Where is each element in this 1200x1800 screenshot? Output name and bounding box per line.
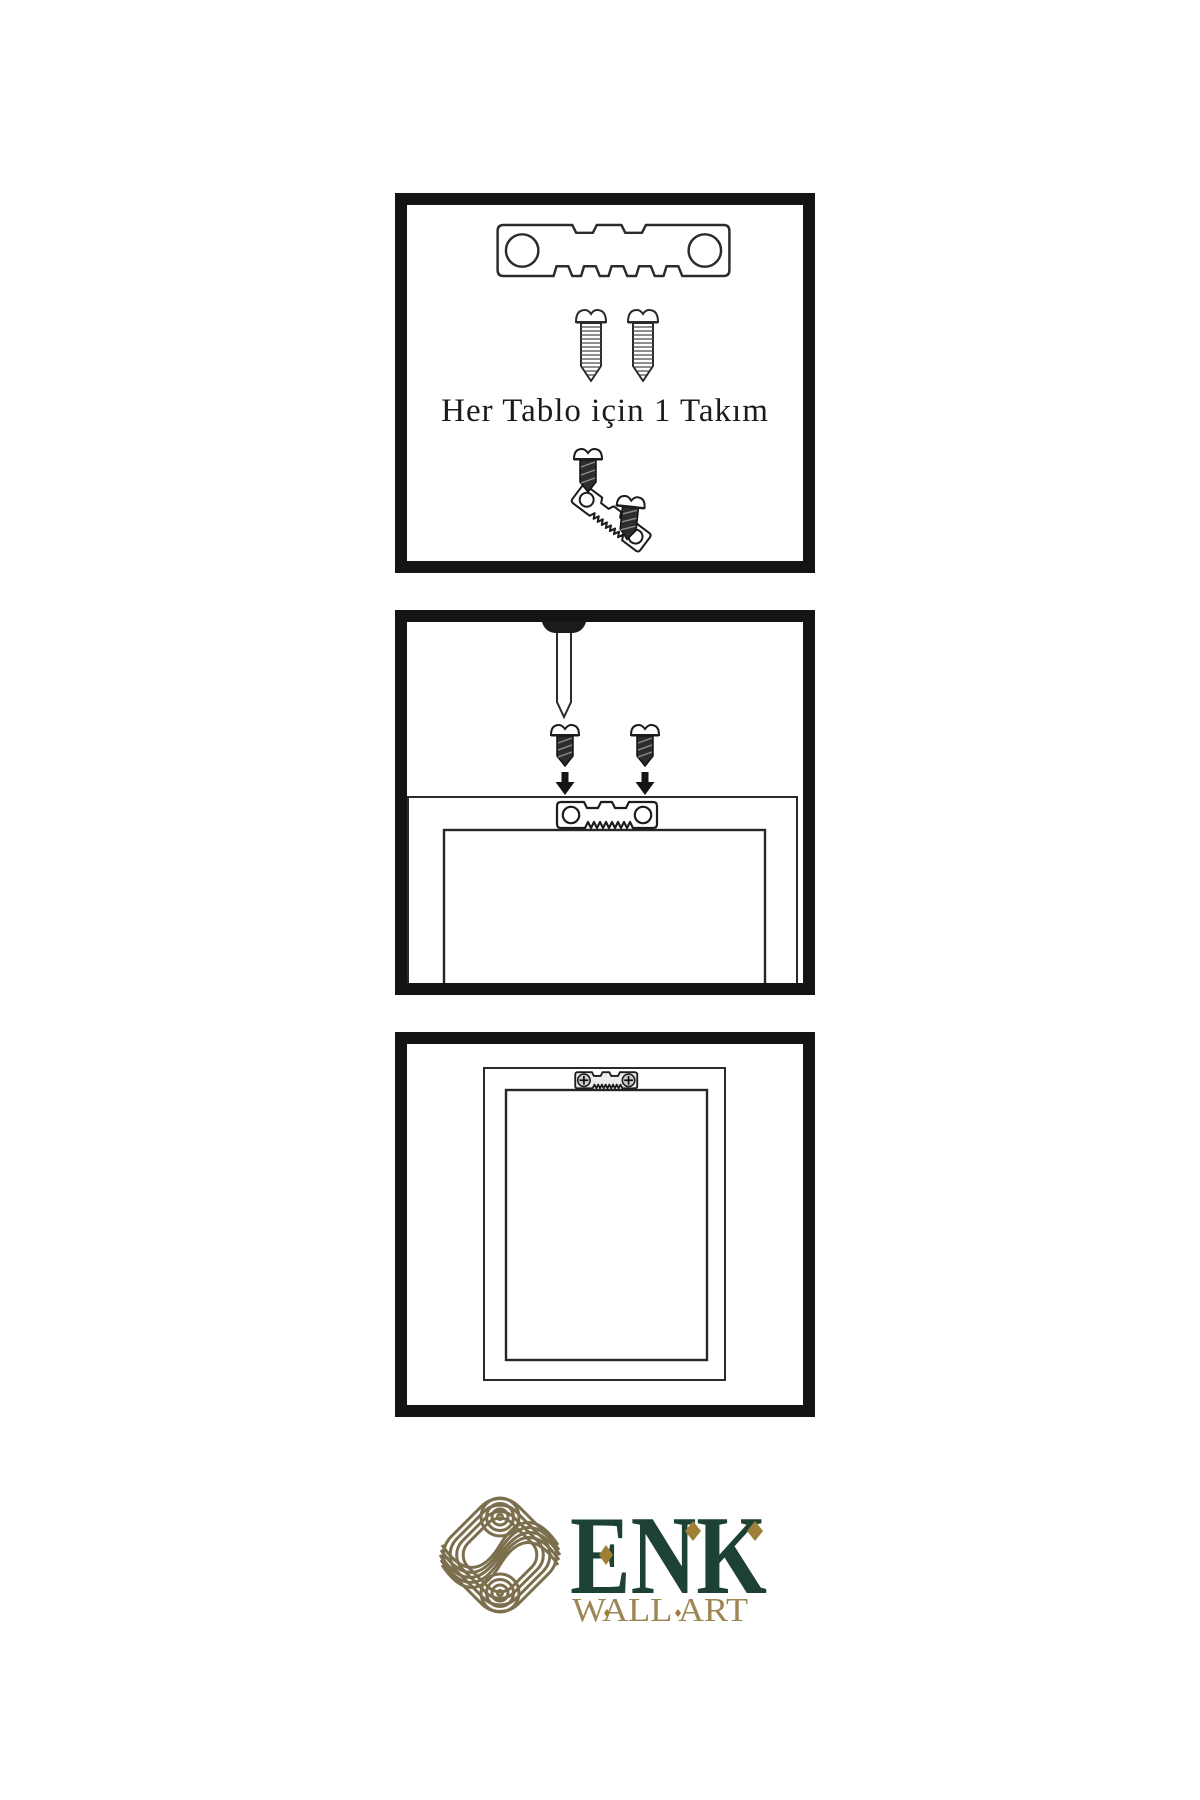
hanger-installed-illustration — [407, 1044, 803, 1405]
step-panel-hardware-kit: Her Tablo için 1 Takım — [395, 193, 815, 573]
down-arrow-icon — [556, 772, 575, 795]
frame-back-outline — [484, 1068, 725, 1380]
attach-hanger-illustration — [407, 622, 803, 983]
sawtooth-hanger-small — [571, 484, 652, 553]
dark-screw-icon — [631, 725, 659, 766]
dark-screw-icon — [574, 449, 602, 492]
brand-subtitle: WALL ART — [572, 1592, 748, 1629]
dark-screw-icon — [551, 725, 579, 766]
nail-icon — [542, 622, 586, 717]
tilted-hanger-with-screws-icon — [569, 446, 669, 564]
screw-icon — [625, 306, 661, 384]
artwork-inner-outline — [444, 830, 765, 983]
installed-sawtooth-hanger-icon — [575, 1072, 637, 1088]
step-panel-attach-hanger — [395, 610, 815, 995]
step-panel-hanger-installed — [395, 1032, 815, 1417]
artwork-inner-outline — [506, 1090, 707, 1360]
brand-logo: ENK WALL ART — [420, 1470, 780, 1640]
kit-caption: Her Tablo için 1 Takım — [407, 393, 803, 429]
interlocking-knot-icon — [433, 1488, 567, 1622]
phillips-screw-icon — [578, 1074, 590, 1086]
phillips-screw-icon — [622, 1074, 634, 1086]
sawtooth-hanger-icon — [557, 802, 657, 828]
screw-icon — [573, 306, 609, 384]
down-arrow-icon — [636, 772, 655, 795]
instruction-sheet: { "page": { "background": "#ffffff" }, "… — [0, 0, 1200, 1800]
sawtooth-hanger-icon — [495, 223, 732, 278]
